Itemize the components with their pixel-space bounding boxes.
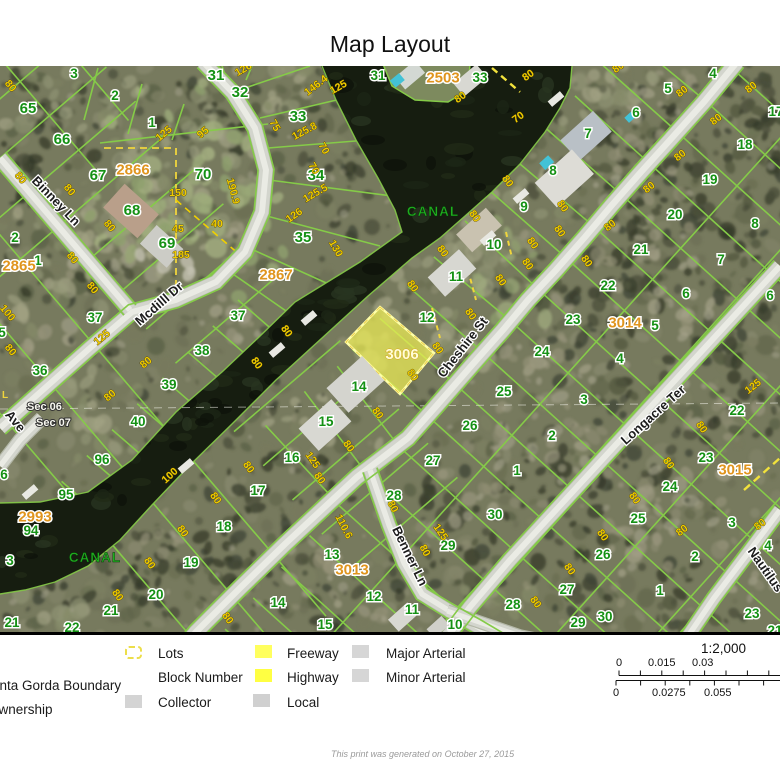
svg-text:2: 2 <box>111 88 119 103</box>
svg-text:65: 65 <box>20 100 37 117</box>
svg-text:1: 1 <box>656 583 664 598</box>
svg-text:6: 6 <box>632 105 640 120</box>
svg-text:0.055: 0.055 <box>704 687 732 699</box>
svg-text:2867: 2867 <box>259 267 292 284</box>
svg-text:32: 32 <box>232 84 249 101</box>
svg-text:6: 6 <box>766 288 774 303</box>
svg-text:20: 20 <box>667 207 682 222</box>
svg-text:3: 3 <box>728 515 736 530</box>
svg-text:38: 38 <box>194 343 210 358</box>
svg-text:17: 17 <box>250 483 265 498</box>
svg-text:15: 15 <box>317 617 333 632</box>
svg-text:27: 27 <box>559 582 574 597</box>
svg-text:CANAL: CANAL <box>407 204 459 219</box>
svg-text:4: 4 <box>616 351 624 366</box>
svg-text:2993: 2993 <box>18 509 51 526</box>
svg-text:4: 4 <box>709 66 717 81</box>
svg-text:CANAL: CANAL <box>69 550 121 565</box>
svg-text:6: 6 <box>682 286 690 301</box>
svg-text:10: 10 <box>486 237 501 252</box>
svg-text:3: 3 <box>70 66 78 81</box>
svg-text:21: 21 <box>4 615 20 630</box>
svg-text:Sec 06: Sec 06 <box>27 401 62 413</box>
svg-text:22: 22 <box>729 403 744 418</box>
svg-text:0.0275: 0.0275 <box>652 687 686 699</box>
svg-text:36: 36 <box>32 363 48 378</box>
svg-text:30: 30 <box>597 609 612 624</box>
svg-text:3: 3 <box>6 553 14 568</box>
svg-text:27: 27 <box>425 453 440 468</box>
svg-text:18: 18 <box>737 137 753 152</box>
svg-text:20: 20 <box>148 587 163 602</box>
svg-text:29: 29 <box>570 615 585 630</box>
svg-text:14: 14 <box>351 379 367 394</box>
svg-text:9: 9 <box>520 199 528 214</box>
svg-text:2: 2 <box>691 549 699 564</box>
svg-text:5: 5 <box>664 81 672 96</box>
svg-text:16: 16 <box>284 450 300 465</box>
svg-text:2503: 2503 <box>426 70 459 87</box>
svg-text:26: 26 <box>595 547 611 562</box>
svg-text:35: 35 <box>295 229 312 246</box>
svg-text:22: 22 <box>600 278 615 293</box>
svg-text:40: 40 <box>130 414 145 429</box>
svg-text:66: 66 <box>54 131 71 148</box>
svg-text:7: 7 <box>584 126 592 141</box>
svg-text:19: 19 <box>702 172 717 187</box>
svg-text:0: 0 <box>616 657 622 669</box>
svg-text:5: 5 <box>0 325 6 340</box>
svg-text:11: 11 <box>449 269 464 284</box>
svg-text:21: 21 <box>103 603 119 618</box>
svg-text:3014: 3014 <box>608 315 642 332</box>
svg-text:11: 11 <box>405 602 420 617</box>
svg-text:40: 40 <box>211 218 223 230</box>
svg-text:31: 31 <box>208 67 225 84</box>
svg-text:70: 70 <box>195 166 212 183</box>
svg-text:45: 45 <box>172 223 184 235</box>
svg-text:0.015: 0.015 <box>648 657 676 669</box>
svg-text:23: 23 <box>565 312 581 327</box>
svg-text:24: 24 <box>534 344 550 359</box>
svg-text:25: 25 <box>496 384 512 399</box>
svg-text:12: 12 <box>419 310 434 325</box>
svg-text:6: 6 <box>0 467 8 482</box>
svg-text:3: 3 <box>580 392 588 407</box>
svg-text:2: 2 <box>548 428 556 443</box>
svg-text:18: 18 <box>216 519 232 534</box>
svg-text:7: 7 <box>717 252 725 267</box>
svg-text:37: 37 <box>87 310 102 325</box>
svg-text:21: 21 <box>633 242 649 257</box>
svg-text:8: 8 <box>751 216 759 231</box>
svg-text:4: 4 <box>764 538 772 553</box>
svg-text:68: 68 <box>124 202 141 219</box>
svg-text:2: 2 <box>11 230 19 245</box>
svg-text:17: 17 <box>768 104 780 119</box>
svg-text:33: 33 <box>472 70 488 85</box>
svg-text:150: 150 <box>169 187 187 199</box>
svg-text:28: 28 <box>505 597 521 612</box>
svg-text:3013: 3013 <box>335 562 368 579</box>
svg-text:14: 14 <box>270 595 286 610</box>
svg-text:5: 5 <box>651 318 659 333</box>
svg-text:13: 13 <box>324 547 340 562</box>
svg-text:33: 33 <box>290 108 307 125</box>
svg-text:37: 37 <box>230 308 245 323</box>
svg-text:25: 25 <box>630 511 646 526</box>
svg-text:23: 23 <box>744 606 760 621</box>
svg-text:8: 8 <box>549 163 557 178</box>
svg-text:1: 1 <box>513 463 521 478</box>
svg-text:2866: 2866 <box>116 162 149 179</box>
svg-text:0.03: 0.03 <box>692 657 713 669</box>
svg-text:3015: 3015 <box>718 462 751 479</box>
svg-text:26: 26 <box>462 418 478 433</box>
svg-text:19: 19 <box>183 555 198 570</box>
svg-text:96: 96 <box>94 452 110 467</box>
svg-text:67: 67 <box>90 167 107 184</box>
svg-text:23: 23 <box>698 450 714 465</box>
svg-text:15: 15 <box>318 414 334 429</box>
svg-text:31: 31 <box>370 68 386 83</box>
svg-text:0: 0 <box>613 687 619 699</box>
svg-text:22: 22 <box>64 620 79 632</box>
svg-text:39: 39 <box>161 377 176 392</box>
svg-text:10: 10 <box>447 617 462 632</box>
svg-text:Sec 07: Sec 07 <box>36 417 71 429</box>
svg-text:3006: 3006 <box>385 346 418 363</box>
svg-text:1: 1 <box>148 115 156 130</box>
svg-text:24: 24 <box>662 479 678 494</box>
svg-text:30: 30 <box>487 507 502 522</box>
svg-text:95: 95 <box>58 487 74 502</box>
svg-text:12: 12 <box>366 589 381 604</box>
svg-text:L: L <box>2 390 8 401</box>
svg-text:2865: 2865 <box>2 258 35 275</box>
svg-text:185: 185 <box>172 249 190 261</box>
